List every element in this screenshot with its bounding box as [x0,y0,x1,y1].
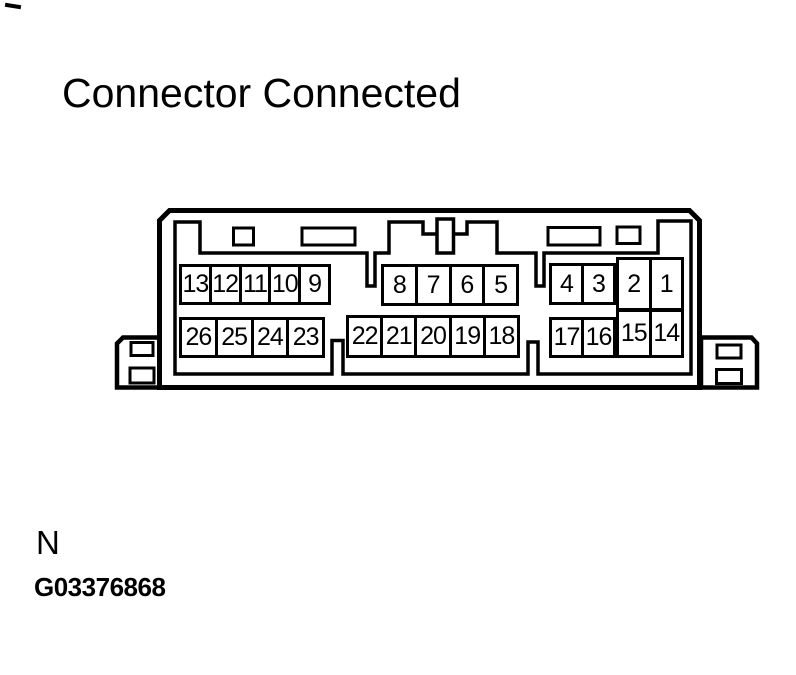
pin-21: 21 [380,318,414,355]
ear-right-slot-top [717,345,741,358]
keying-square-left [234,228,254,245]
pin-group-top-right: 4 3 [549,263,616,305]
ear-left-slot-top [131,343,153,356]
pin-14: 14 [649,312,682,355]
center-key-tab [437,219,454,253]
pin-20: 20 [414,318,448,355]
pin-23: 23 [286,320,322,355]
pin-12: 12 [209,267,239,302]
pin-19: 19 [449,318,483,355]
mounting-ear-left [117,338,160,388]
pin-16: 16 [581,320,613,355]
page-title: Connector Connected [62,70,461,117]
keying-square-right [617,227,640,244]
pin-group-right-tall-bottom: 15 14 [616,310,684,358]
keying-bar-right [548,228,600,246]
pin-5: 5 [482,267,516,303]
pin-10: 10 [268,267,298,302]
pin-group-bottom-right: 17 16 [549,317,616,358]
pin-6: 6 [449,267,483,303]
pin-24: 24 [251,320,287,355]
pin-18: 18 [483,318,517,355]
pin-7: 7 [415,267,449,303]
pin-3: 3 [581,266,613,302]
keying-bar-left [302,228,355,245]
pin-25: 25 [215,320,251,355]
pin-26: 26 [182,320,215,355]
pin-group-top-left: 13 12 11 10 9 [179,264,331,305]
pin-8: 8 [384,267,415,303]
pin-group-right-tall-top: 2 1 [616,257,684,310]
figure-id: G03376868 [34,572,165,603]
pin-group-bottom-left: 26 25 24 23 [179,317,325,358]
ear-right-slot-bottom [717,370,742,384]
mounting-ear-right [701,338,757,388]
pin-15: 15 [619,312,649,355]
pin-group-top-middle: 8 7 6 5 [381,264,519,306]
note-letter: N [36,524,60,562]
pin-2: 2 [619,260,649,308]
pin-9: 9 [298,267,328,302]
ear-left-slot-bottom [130,368,154,383]
pin-11: 11 [239,267,269,302]
pin-13: 13 [182,267,209,302]
scan-artifact [5,3,21,9]
pin-group-bottom-middle: 22 21 20 19 18 [346,315,520,358]
pin-22: 22 [349,318,380,355]
pin-1: 1 [649,260,682,308]
pin-17: 17 [552,320,581,355]
pin-4: 4 [552,266,581,302]
